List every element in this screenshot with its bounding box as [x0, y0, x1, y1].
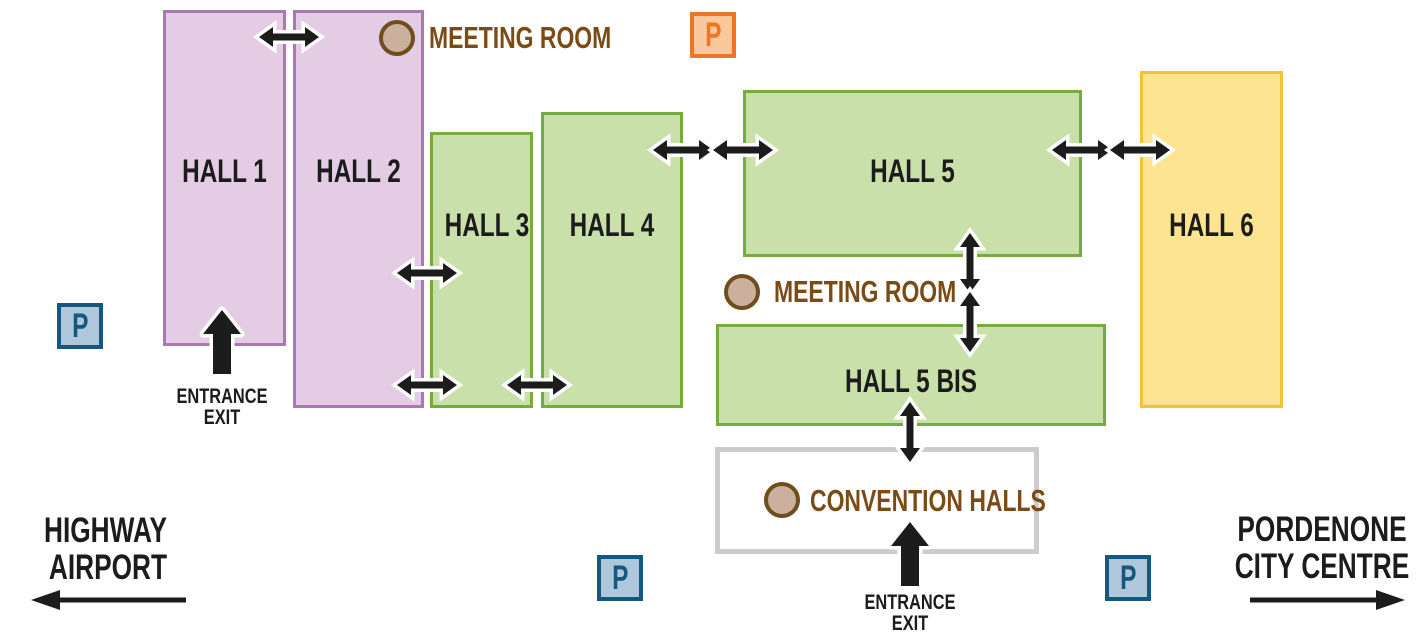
- passage-arrow-horizontal: [710, 131, 776, 169]
- pordenone-text: PORDENONE: [1202, 511, 1428, 548]
- hall-1: HALL 1: [163, 10, 286, 346]
- entrance-arrow-hall1: [196, 306, 248, 378]
- parking-icon-blue-south: P: [597, 555, 643, 601]
- passage-arrow-vertical: [891, 399, 929, 465]
- hall-5-label: HALL 5: [786, 155, 1039, 187]
- parking-letter: P: [1120, 559, 1136, 598]
- direction-pordenone-city-centre: PORDENONE CITY CENTRE: [1202, 511, 1428, 585]
- hall-5-bis-label: HALL 5 BIS: [765, 365, 1057, 397]
- passage-arrow-horizontal: [394, 254, 460, 292]
- city-centre-text: CITY CENTRE: [1202, 548, 1428, 585]
- hall-4-label: HALL 4: [560, 209, 663, 241]
- passage-arrow-horizontal: [1107, 131, 1173, 169]
- parking-letter: P: [72, 307, 88, 346]
- passage-arrow-horizontal: [650, 131, 716, 169]
- passage-arrow-horizontal: [504, 366, 570, 404]
- airport-text: AIRPORT: [44, 549, 167, 586]
- entrance-arrow-convention: [884, 518, 936, 590]
- parking-icon-blue-west: P: [57, 303, 103, 349]
- meeting-room-label-middle: MEETING ROOM: [774, 276, 956, 307]
- meeting-room-icon: [379, 20, 415, 56]
- convention-halls-label: CONVENTION HALLS: [810, 485, 1046, 516]
- hall-2-label: HALL 2: [311, 155, 406, 187]
- meeting-room-label-top: MEETING ROOM: [429, 22, 611, 53]
- entrance-text: ENTRANCE: [160, 386, 285, 407]
- passage-arrow-horizontal: [256, 18, 322, 56]
- direction-highway-airport: HIGHWAY AIRPORT: [44, 512, 167, 586]
- parking-icon-orange: P: [690, 12, 736, 58]
- meeting-room-icon: [724, 274, 760, 310]
- fairgrounds-map: HALL 1 HALL 2 HALL 3 HALL 4 HALL 5 HALL …: [0, 0, 1428, 640]
- direction-arrow-left: [28, 587, 188, 613]
- exit-text: EXIT: [160, 407, 285, 428]
- convention-halls-icon: [764, 482, 800, 518]
- parking-letter: P: [705, 16, 721, 55]
- hall-3-label: HALL 3: [445, 209, 519, 241]
- direction-arrow-right: [1248, 587, 1408, 613]
- hall-5: HALL 5: [743, 90, 1082, 257]
- passage-arrow-horizontal: [394, 366, 460, 404]
- entrance-text: ENTRANCE: [848, 592, 973, 613]
- parking-letter: P: [612, 559, 628, 598]
- passage-arrow-vertical: [951, 289, 989, 355]
- hall-2: HALL 2: [293, 10, 424, 408]
- entrance-exit-label-convention: ENTRANCE EXIT: [848, 592, 973, 634]
- hall-6: HALL 6: [1140, 71, 1283, 408]
- hall-6-label: HALL 6: [1159, 209, 1263, 241]
- highway-text: HIGHWAY: [44, 512, 167, 549]
- parking-icon-blue-southeast: P: [1105, 555, 1151, 601]
- exit-text: EXIT: [848, 613, 973, 634]
- entrance-exit-label-hall1: ENTRANCE EXIT: [160, 386, 285, 428]
- hall-1-label: HALL 1: [180, 155, 269, 187]
